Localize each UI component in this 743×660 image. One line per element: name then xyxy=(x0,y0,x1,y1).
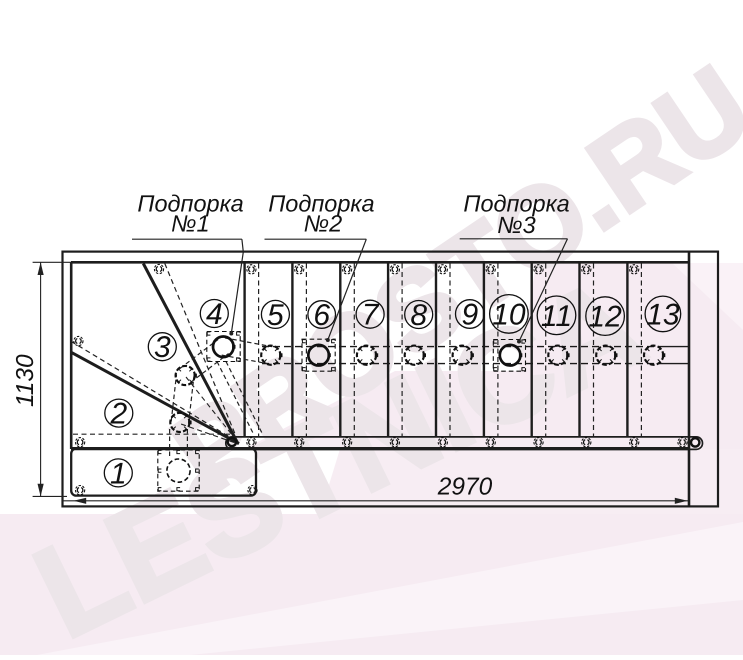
svg-text:4: 4 xyxy=(206,298,223,331)
svg-text:6: 6 xyxy=(313,299,330,332)
svg-text:10: 10 xyxy=(492,298,526,331)
svg-text:1: 1 xyxy=(110,457,127,490)
svg-text:1130: 1130 xyxy=(12,354,39,407)
svg-text:2970: 2970 xyxy=(437,474,493,501)
svg-text:№1: №1 xyxy=(171,211,210,237)
svg-text:11: 11 xyxy=(541,300,572,333)
svg-text:9: 9 xyxy=(461,299,478,332)
svg-text:12: 12 xyxy=(588,301,622,334)
svg-text:3: 3 xyxy=(154,331,171,364)
svg-text:7: 7 xyxy=(362,299,380,332)
svg-text:№3: №3 xyxy=(497,212,536,238)
svg-text:5: 5 xyxy=(267,299,284,332)
svg-text:2: 2 xyxy=(109,398,127,431)
svg-text:13: 13 xyxy=(646,298,680,331)
svg-text:№2: №2 xyxy=(304,211,343,237)
svg-text:8: 8 xyxy=(410,299,427,332)
